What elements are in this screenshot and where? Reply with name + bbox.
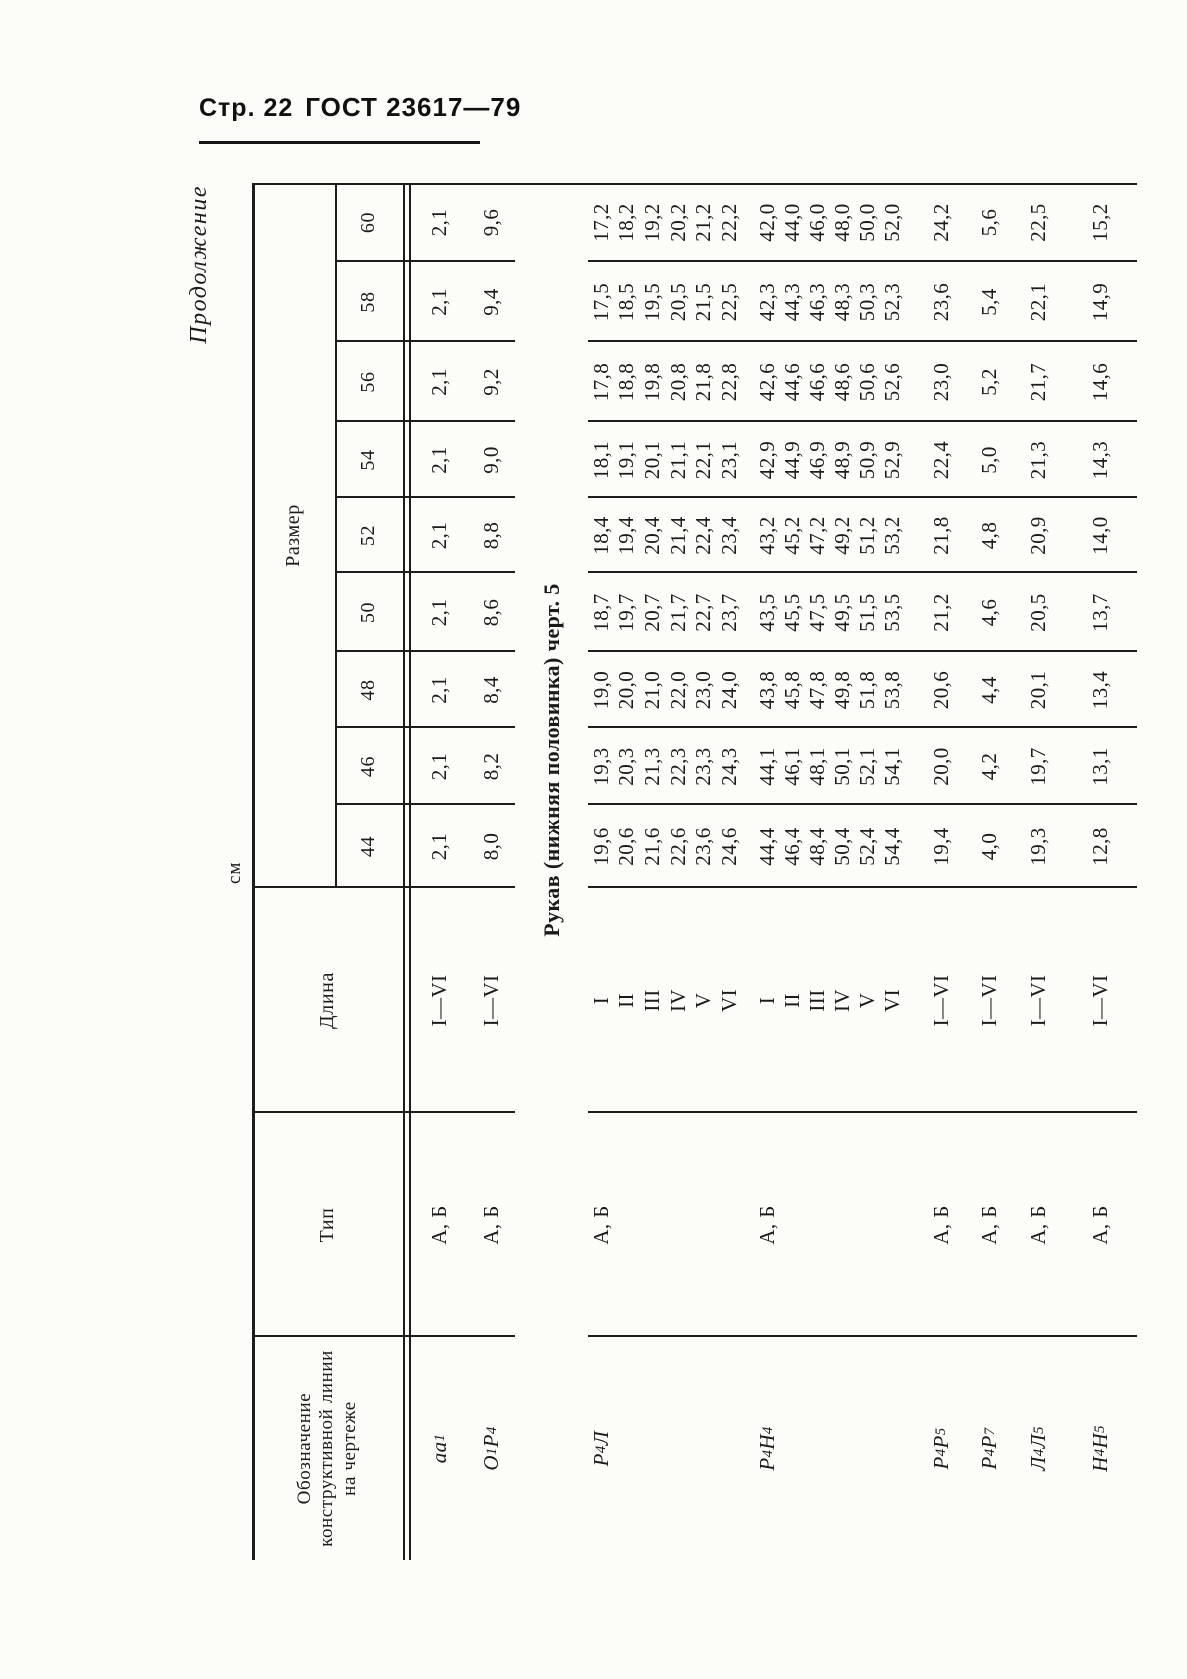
size-header-56: 56 [335, 342, 401, 422]
value-cell: 44,1 [755, 728, 780, 805]
value-cell: 20,7 [639, 573, 665, 652]
page-header: Стр. 22ГОСТ 23617—79 [199, 92, 521, 123]
value-cell: 43,5 [755, 573, 780, 652]
value-cell: 43,2 [755, 498, 780, 573]
value-cell: 20,1 [1014, 652, 1063, 728]
value-cell: 24,6 [716, 805, 742, 888]
value-cell: 52,1 [855, 728, 880, 805]
value-cell: 22,4 [917, 422, 965, 498]
value-cell: 20,3 [614, 728, 640, 805]
value-cell: 46,9 [805, 422, 830, 498]
size-header-46: 46 [335, 728, 401, 805]
value-cell: 4,4 [965, 652, 1014, 728]
value-cell: 19,4 [917, 805, 965, 888]
value-cell: 2,1 [411, 262, 468, 342]
value-cell: 2,1 [411, 728, 468, 805]
row-length: III [805, 888, 830, 1113]
value-cell: 44,6 [780, 342, 805, 422]
value-cell: 54,1 [880, 728, 905, 805]
value-cell: 19,7 [1014, 728, 1063, 805]
unit-note: см [224, 862, 246, 884]
value-cell: 49,5 [830, 573, 855, 652]
value-cell: 22,3 [665, 728, 691, 805]
value-cell: 46,3 [805, 262, 830, 342]
value-cell: 2,1 [411, 422, 468, 498]
value-cell: 19,0 [588, 652, 614, 728]
header-double-rule-a [403, 183, 405, 1560]
value-cell: 19,2 [639, 183, 665, 262]
value-cell: 19,5 [639, 262, 665, 342]
value-cell: 14,3 [1063, 422, 1137, 498]
value-cell: 9,6 [468, 183, 515, 262]
value-cell: 4,0 [965, 805, 1014, 888]
value-cell: 18,5 [614, 262, 640, 342]
row-length: II [780, 888, 805, 1113]
value-cell: 54,4 [880, 805, 905, 888]
value-cell: 20,5 [665, 262, 691, 342]
value-cell: 48,9 [830, 422, 855, 498]
row-designation: Р4Р5 [917, 1337, 965, 1560]
value-cell: 21,0 [639, 652, 665, 728]
value-cell: 21,7 [665, 573, 691, 652]
header-rule [199, 141, 480, 144]
value-cell: 20,6 [614, 805, 640, 888]
value-cell: 48,1 [805, 728, 830, 805]
col-header-type: Тип [252, 1113, 403, 1337]
value-cell: 48,4 [805, 805, 830, 888]
value-cell: 13,1 [1063, 728, 1137, 805]
value-cell: 23,3 [691, 728, 717, 805]
page-number: Стр. 22 [199, 94, 293, 122]
value-cell: 52,9 [880, 422, 905, 498]
value-cell: 4,2 [965, 728, 1014, 805]
value-cell: 5,0 [965, 422, 1014, 498]
row-length: V [691, 888, 717, 1113]
value-cell: 8,4 [468, 652, 515, 728]
size-header-58: 58 [335, 262, 401, 342]
value-cell: 9,4 [468, 262, 515, 342]
value-cell: 47,2 [805, 498, 830, 573]
value-cell: 22,0 [665, 652, 691, 728]
row-length: V [855, 888, 880, 1113]
row-type: А, Б [411, 1113, 468, 1337]
value-cell: 21,5 [691, 262, 717, 342]
value-cell: 44,4 [755, 805, 780, 888]
value-cell: 42,9 [755, 422, 780, 498]
value-cell: 48,0 [830, 183, 855, 262]
value-cell: 21,4 [665, 498, 691, 573]
row-length: I [755, 888, 780, 1113]
col-header-size-group: Размер [252, 183, 335, 888]
size-header-52: 52 [335, 498, 401, 573]
value-cell: 23,0 [917, 342, 965, 422]
value-cell: 22,5 [1014, 183, 1063, 262]
value-cell: 5,2 [965, 342, 1014, 422]
value-cell: 20,2 [665, 183, 691, 262]
row-type: А, Б [1063, 1113, 1137, 1337]
value-cell: 19,1 [614, 422, 640, 498]
value-cell: 20,4 [639, 498, 665, 573]
size-header-48: 48 [335, 652, 401, 728]
row-length: I—VI [1014, 888, 1063, 1113]
row-length: I—VI [411, 888, 468, 1113]
value-cell: 23,6 [917, 262, 965, 342]
row-designation: Л4Л5 [1014, 1337, 1063, 1560]
value-cell: 42,3 [755, 262, 780, 342]
value-cell: 20,9 [1014, 498, 1063, 573]
value-cell: 44,0 [780, 183, 805, 262]
value-cell: 2,1 [411, 342, 468, 422]
value-cell: 21,2 [917, 573, 965, 652]
row-length: I [588, 888, 614, 1113]
size-header-50: 50 [335, 573, 401, 652]
value-cell: 2,1 [411, 805, 468, 888]
continuation-note: Продолжение [186, 185, 213, 344]
value-cell: 46,0 [805, 183, 830, 262]
value-cell: 21,8 [917, 498, 965, 573]
value-cell: 22,1 [691, 422, 717, 498]
value-cell: 50,4 [830, 805, 855, 888]
value-cell: 52,4 [855, 805, 880, 888]
row-type: А, Б [1014, 1113, 1063, 1337]
scanned-document-page: Стр. 22ГОСТ 23617—79 Продолжение см Обоз… [0, 0, 1187, 1679]
value-cell: 21,8 [691, 342, 717, 422]
row-length: I—VI [1063, 888, 1137, 1113]
value-cell: 9,0 [468, 422, 515, 498]
value-cell: 22,5 [716, 262, 742, 342]
value-cell: 47,8 [805, 652, 830, 728]
value-cell: 19,8 [639, 342, 665, 422]
value-cell: 19,7 [614, 573, 640, 652]
value-cell: 46,4 [780, 805, 805, 888]
row-length: II [614, 888, 640, 1113]
value-cell: 43,8 [755, 652, 780, 728]
row-designation: Н4Н5 [1063, 1337, 1137, 1560]
value-cell: 50,9 [855, 422, 880, 498]
row-type: А, Б [917, 1113, 965, 1337]
value-cell: 52,3 [880, 262, 905, 342]
row-designation: аа1 [411, 1337, 468, 1560]
value-cell: 22,1 [1014, 262, 1063, 342]
value-cell: 21,7 [1014, 342, 1063, 422]
row-designation: Р4Р7 [965, 1337, 1014, 1560]
value-cell: 48,3 [830, 262, 855, 342]
value-cell: 20,1 [639, 422, 665, 498]
value-cell: 22,6 [665, 805, 691, 888]
row-length: IV [665, 888, 691, 1113]
value-cell: 52,6 [880, 342, 905, 422]
value-cell: 50,1 [830, 728, 855, 805]
row-designation: О1Р4 [468, 1337, 515, 1560]
value-cell: 5,4 [965, 262, 1014, 342]
row-length: VI [880, 888, 905, 1113]
value-cell: 42,6 [755, 342, 780, 422]
value-cell: 17,2 [588, 183, 614, 262]
value-cell: 46,1 [780, 728, 805, 805]
row-length: VI [716, 888, 742, 1113]
col-header-designation: Обозначение конструктивной линии на черт… [252, 1337, 403, 1560]
value-cell: 18,1 [588, 422, 614, 498]
value-cell: 15,2 [1063, 183, 1137, 262]
value-cell: 17,8 [588, 342, 614, 422]
value-cell: 21,6 [639, 805, 665, 888]
rotated-table-area: Продолжение см Обозначение конструктивно… [252, 183, 1137, 1560]
value-cell: 45,8 [780, 652, 805, 728]
value-cell: 21,1 [665, 422, 691, 498]
value-cell: 8,6 [468, 573, 515, 652]
value-cell: 13,7 [1063, 573, 1137, 652]
row-length: I—VI [965, 888, 1014, 1113]
value-cell: 20,6 [917, 652, 965, 728]
value-cell: 51,8 [855, 652, 880, 728]
size-header-54: 54 [335, 422, 401, 498]
standard-number: ГОСТ 23617—79 [305, 92, 521, 122]
value-cell: 19,3 [1014, 805, 1063, 888]
value-cell: 20,8 [665, 342, 691, 422]
value-cell: 24,0 [716, 652, 742, 728]
value-cell: 2,1 [411, 183, 468, 262]
value-cell: 23,4 [716, 498, 742, 573]
value-cell: 18,8 [614, 342, 640, 422]
value-cell: 44,3 [780, 262, 805, 342]
value-cell: 18,7 [588, 573, 614, 652]
value-cell: 49,8 [830, 652, 855, 728]
value-cell: 14,6 [1063, 342, 1137, 422]
value-cell: 18,4 [588, 498, 614, 573]
value-cell: 8,8 [468, 498, 515, 573]
value-cell: 46,6 [805, 342, 830, 422]
value-cell: 23,1 [716, 422, 742, 498]
value-cell: 47,5 [805, 573, 830, 652]
value-cell: 44,9 [780, 422, 805, 498]
value-cell: 2,1 [411, 652, 468, 728]
value-cell: 20,0 [614, 652, 640, 728]
value-cell: 50,3 [855, 262, 880, 342]
value-cell: 53,2 [880, 498, 905, 573]
value-cell: 20,5 [1014, 573, 1063, 652]
value-cell: 49,2 [830, 498, 855, 573]
value-cell: 17,5 [588, 262, 614, 342]
value-cell: 13,4 [1063, 652, 1137, 728]
value-cell: 19,4 [614, 498, 640, 573]
col-header-length: Длина [252, 888, 403, 1113]
row-type: А, Б [755, 1113, 780, 1337]
value-cell: 14,0 [1063, 498, 1137, 573]
value-cell: 5,6 [965, 183, 1014, 262]
value-cell: 53,5 [880, 573, 905, 652]
size-header-44: 44 [335, 805, 401, 888]
value-cell: 22,7 [691, 573, 717, 652]
section-title: Рукав (нижняя половинка) черт. 5 [515, 360, 588, 1160]
value-cell: 23,6 [691, 805, 717, 888]
value-cell: 45,5 [780, 573, 805, 652]
value-cell: 24,3 [716, 728, 742, 805]
row-length: I—VI [468, 888, 515, 1113]
value-cell: 9,2 [468, 342, 515, 422]
row-designation: Р4Л [588, 1337, 614, 1560]
value-cell: 19,3 [588, 728, 614, 805]
value-cell: 21,2 [691, 183, 717, 262]
value-cell: 53,8 [880, 652, 905, 728]
value-cell: 2,1 [411, 498, 468, 573]
value-cell: 23,7 [716, 573, 742, 652]
value-cell: 8,2 [468, 728, 515, 805]
row-length: IV [830, 888, 855, 1113]
value-cell: 24,2 [917, 183, 965, 262]
value-cell: 20,0 [917, 728, 965, 805]
row-type: А, Б [965, 1113, 1014, 1337]
row-length: III [639, 888, 665, 1113]
value-cell: 52,0 [880, 183, 905, 262]
value-cell: 51,5 [855, 573, 880, 652]
value-cell: 50,6 [855, 342, 880, 422]
value-cell: 22,2 [716, 183, 742, 262]
row-length: I—VI [917, 888, 965, 1113]
value-cell: 8,0 [468, 805, 515, 888]
value-cell: 22,8 [716, 342, 742, 422]
value-cell: 42,0 [755, 183, 780, 262]
value-cell: 14,9 [1063, 262, 1137, 342]
value-cell: 19,6 [588, 805, 614, 888]
row-type: А, Б [468, 1113, 515, 1337]
value-cell: 51,2 [855, 498, 880, 573]
value-cell: 48,6 [830, 342, 855, 422]
value-cell: 12,8 [1063, 805, 1137, 888]
value-cell: 4,6 [965, 573, 1014, 652]
value-cell: 4,8 [965, 498, 1014, 573]
value-cell: 2,1 [411, 573, 468, 652]
row-designation: Р4Н4 [755, 1337, 780, 1560]
value-cell: 50,0 [855, 183, 880, 262]
value-cell: 23,0 [691, 652, 717, 728]
value-cell: 18,2 [614, 183, 640, 262]
value-cell: 21,3 [1014, 422, 1063, 498]
row-type: А, Б [588, 1113, 614, 1337]
value-cell: 21,3 [639, 728, 665, 805]
size-header-60: 60 [335, 183, 401, 262]
value-cell: 45,2 [780, 498, 805, 573]
value-cell: 22,4 [691, 498, 717, 573]
